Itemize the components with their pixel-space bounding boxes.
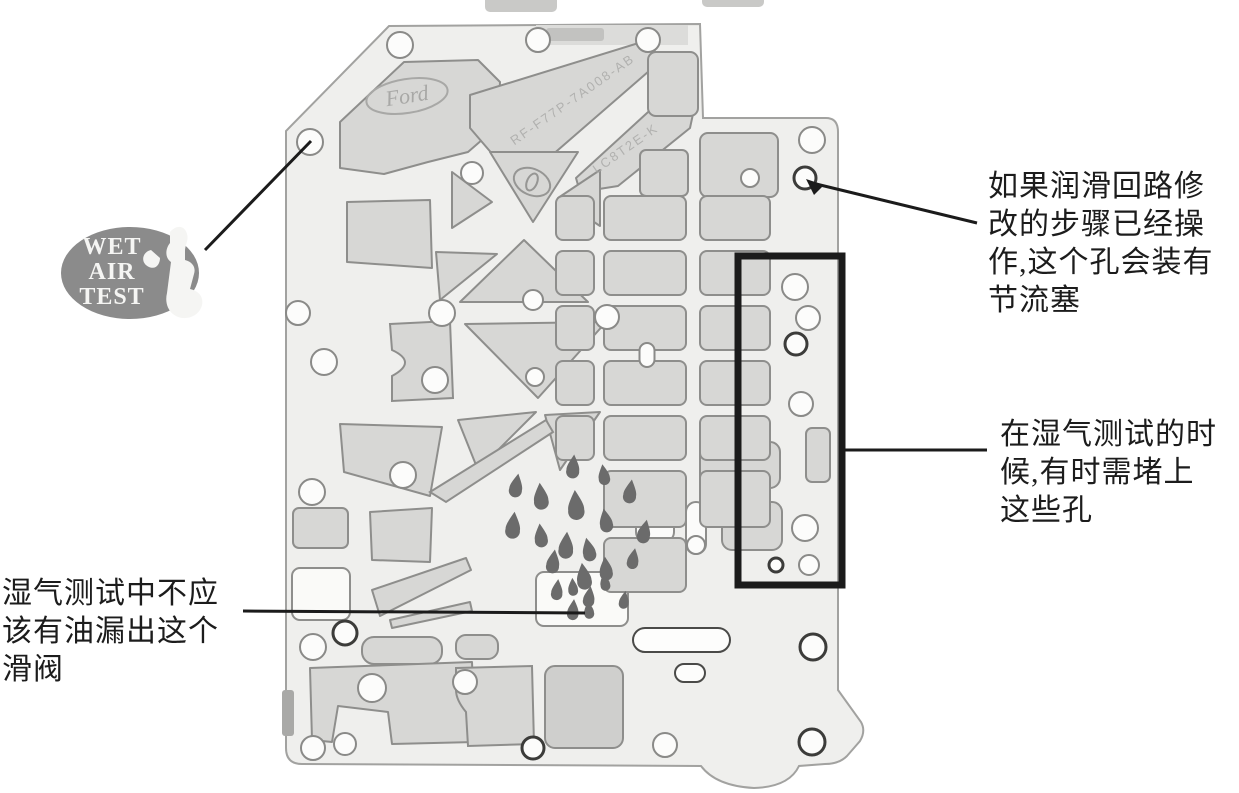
plate-hole	[387, 32, 413, 58]
plate-pocket	[370, 508, 432, 562]
badge-line: WET	[82, 234, 141, 260]
plate-hole	[422, 367, 448, 393]
page-artifact	[485, 0, 557, 12]
edge-notch	[282, 690, 294, 736]
plate-hole	[526, 28, 550, 52]
plate-hole	[333, 621, 357, 645]
plate-pocket	[640, 150, 688, 196]
annotation-plug-these-holes: 在湿气测试的时候,有时需堵上这些孔	[1000, 416, 1217, 530]
plate-pocket	[456, 635, 498, 659]
annotation-line: 湿气测试中不应	[2, 575, 219, 613]
plate-slot-hole	[640, 343, 655, 367]
plate-pocket	[700, 133, 778, 197]
plate-hole	[799, 127, 825, 153]
annotation-line: 改的步骤已经操	[988, 206, 1214, 244]
annotation-lube-circuit-plug: 如果润滑回路修改的步骤已经操作,这个孔会装有节流塞	[988, 168, 1214, 320]
plate-hole	[636, 28, 660, 52]
callout-line	[243, 611, 585, 613]
plate-pocket	[604, 416, 686, 460]
plate-hole	[653, 733, 677, 757]
plate-hole	[785, 333, 807, 355]
plate-hole	[461, 162, 483, 184]
annotation-line: 节流塞	[988, 282, 1214, 320]
annotation-line: 如果润滑回路修	[988, 168, 1214, 206]
plate-pocket	[556, 306, 594, 350]
plate-pocket	[556, 196, 594, 240]
plate-hole	[300, 634, 326, 660]
annotation-line: 在湿气测试的时	[1000, 416, 1217, 454]
plate-hole	[792, 515, 818, 541]
plate-hole	[429, 300, 455, 326]
plate-hole	[526, 368, 544, 386]
page-artifact	[702, 0, 764, 7]
plate-hole	[301, 736, 325, 760]
annotation-line: 这些孔	[1000, 492, 1217, 530]
plate-hole	[390, 462, 416, 488]
plate-pocket	[293, 508, 348, 548]
plate-pocket	[806, 428, 830, 482]
plate-hole	[595, 305, 619, 329]
plate-hole	[453, 670, 477, 694]
plate-hole	[800, 634, 826, 660]
figure-canvas: FordRF-F77P-7A008-ABLC8T2E-K WETAIRTEST …	[0, 0, 1239, 793]
plate-hole	[311, 349, 337, 375]
plate-pocket	[545, 666, 623, 748]
plate-hole	[782, 274, 808, 300]
annotation-no-oil-leak-valve: 湿气测试中不应该有油漏出这个滑阀	[2, 575, 219, 689]
plate-hole	[299, 479, 325, 505]
plate-pocket	[700, 196, 770, 240]
plate-hole	[687, 536, 705, 554]
plate-pocket	[675, 664, 705, 682]
plate-pocket	[556, 251, 594, 295]
plate-hole	[799, 729, 825, 755]
plate-pocket	[604, 251, 686, 295]
plate-pocket	[604, 196, 686, 240]
annotation-line: 该有油漏出这个	[2, 613, 219, 651]
plate-pocket	[556, 361, 594, 405]
annotation-line: 滑阀	[2, 651, 219, 689]
plate-hole	[799, 555, 819, 575]
plate-pocket	[648, 52, 698, 116]
plate-hole	[286, 301, 310, 325]
plate-hole	[741, 169, 759, 187]
plate-pocket	[347, 200, 432, 268]
plate-hole	[334, 733, 356, 755]
badge-line: TEST	[79, 284, 144, 310]
plate-hole	[796, 306, 820, 330]
plate-hole	[522, 737, 544, 759]
annotation-line: 候,有时需堵上	[1000, 454, 1217, 492]
plate-pocket	[362, 637, 442, 664]
plate-pocket	[556, 416, 594, 460]
plate-pocket	[604, 471, 686, 527]
plate-pocket	[604, 538, 686, 592]
plate-pocket	[633, 628, 730, 652]
plate-hole	[358, 674, 386, 702]
plate-hole	[523, 290, 543, 310]
annotation-line: 作,这个孔会装有	[988, 244, 1214, 282]
stamped-tab-mark	[546, 28, 604, 41]
plate-hole	[789, 392, 813, 416]
badge-line: AIR	[88, 259, 135, 285]
plate-hole	[769, 558, 783, 572]
wet-air-test-badge: WETAIRTEST	[61, 227, 202, 319]
